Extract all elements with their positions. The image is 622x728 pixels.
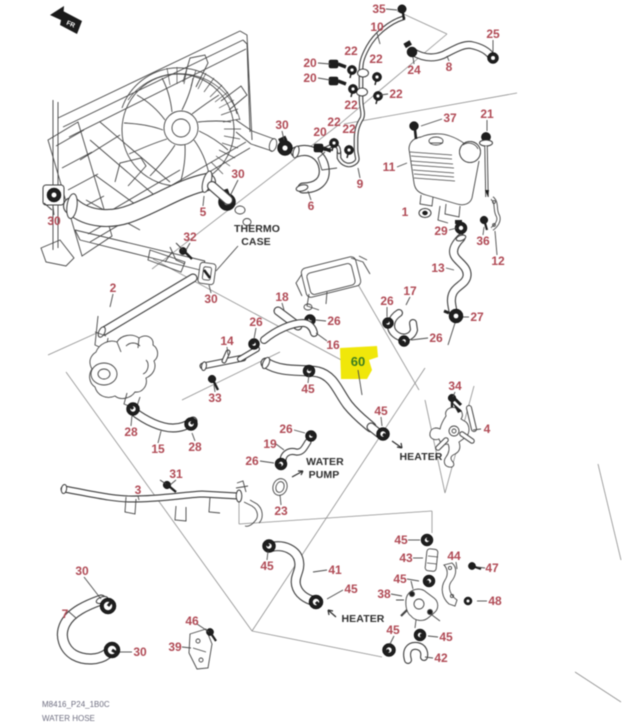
svg-text:20: 20 (303, 56, 317, 70)
svg-text:25: 25 (486, 27, 500, 41)
svg-text:21: 21 (480, 107, 494, 121)
svg-text:26: 26 (429, 331, 443, 345)
svg-text:HEATER: HEATER (400, 451, 443, 463)
svg-text:23: 23 (274, 504, 288, 518)
svg-text:45: 45 (393, 572, 407, 586)
svg-text:45: 45 (301, 382, 315, 396)
svg-text:3: 3 (135, 483, 142, 497)
svg-text:11: 11 (383, 160, 396, 174)
svg-text:27: 27 (470, 310, 484, 324)
svg-text:31: 31 (169, 467, 183, 481)
svg-text:28: 28 (188, 440, 202, 454)
svg-text:30: 30 (133, 645, 147, 659)
svg-text:22: 22 (344, 44, 358, 58)
svg-text:20: 20 (313, 125, 327, 139)
svg-text:6: 6 (308, 199, 315, 213)
svg-text:48: 48 (488, 594, 502, 608)
svg-text:45: 45 (439, 630, 453, 644)
svg-text:30: 30 (231, 167, 245, 181)
svg-text:32: 32 (183, 230, 197, 244)
svg-text:22: 22 (342, 122, 356, 136)
svg-text:24: 24 (407, 63, 421, 77)
svg-text:17: 17 (403, 284, 417, 298)
svg-text:12: 12 (491, 254, 505, 268)
svg-text:42: 42 (434, 651, 448, 665)
svg-text:35: 35 (372, 2, 386, 16)
svg-text:THERMO: THERMO (234, 223, 280, 235)
svg-text:13: 13 (431, 261, 445, 275)
svg-text:47: 47 (485, 561, 499, 575)
svg-text:30: 30 (204, 292, 218, 306)
svg-text:22: 22 (389, 87, 403, 101)
svg-text:30: 30 (75, 564, 89, 578)
svg-text:WATER: WATER (306, 456, 344, 468)
svg-text:HEATER: HEATER (342, 613, 385, 625)
svg-text:33: 33 (208, 391, 222, 405)
svg-text:26: 26 (245, 454, 259, 468)
svg-text:22: 22 (344, 98, 358, 112)
svg-text:30: 30 (47, 214, 61, 228)
svg-text:45: 45 (344, 582, 358, 596)
svg-text:29: 29 (434, 224, 448, 238)
svg-text:14: 14 (220, 334, 234, 348)
svg-text:26: 26 (380, 294, 394, 308)
svg-text:45: 45 (394, 533, 408, 547)
svg-text:26: 26 (249, 315, 263, 329)
svg-text:WATER HOSE: WATER HOSE (42, 714, 95, 723)
svg-text:26: 26 (327, 314, 341, 328)
svg-text:28: 28 (124, 425, 138, 439)
svg-text:5: 5 (200, 205, 207, 219)
svg-text:18: 18 (275, 290, 289, 304)
svg-text:34: 34 (448, 379, 462, 393)
svg-text:10: 10 (370, 20, 384, 34)
svg-text:36: 36 (476, 234, 490, 248)
svg-text:37: 37 (443, 111, 457, 125)
svg-text:22: 22 (327, 115, 341, 129)
svg-text:8: 8 (446, 60, 453, 74)
svg-text:19: 19 (263, 437, 277, 451)
svg-text:46: 46 (185, 614, 199, 628)
svg-text:9: 9 (357, 177, 364, 191)
svg-text:1: 1 (402, 205, 409, 219)
svg-text:45: 45 (386, 623, 400, 637)
svg-text:44: 44 (447, 549, 461, 563)
svg-text:PUMP: PUMP (309, 469, 340, 481)
svg-text:60: 60 (351, 354, 365, 369)
svg-text:M8416_P24_1B0C: M8416_P24_1B0C (42, 700, 110, 709)
svg-text:26: 26 (279, 422, 293, 436)
svg-text:20: 20 (303, 71, 317, 85)
svg-text:22: 22 (369, 52, 383, 66)
svg-text:45: 45 (260, 559, 274, 573)
svg-text:16: 16 (326, 338, 340, 352)
svg-text:2: 2 (110, 281, 117, 295)
svg-text:15: 15 (151, 442, 165, 456)
svg-text:45: 45 (374, 404, 388, 418)
svg-text:4: 4 (484, 422, 491, 436)
svg-text:43: 43 (399, 551, 413, 565)
svg-text:38: 38 (377, 587, 391, 601)
svg-text:CASE: CASE (241, 236, 271, 248)
svg-text:7: 7 (62, 607, 69, 621)
svg-text:39: 39 (168, 640, 182, 654)
svg-text:30: 30 (275, 118, 289, 132)
svg-text:41: 41 (328, 563, 342, 577)
